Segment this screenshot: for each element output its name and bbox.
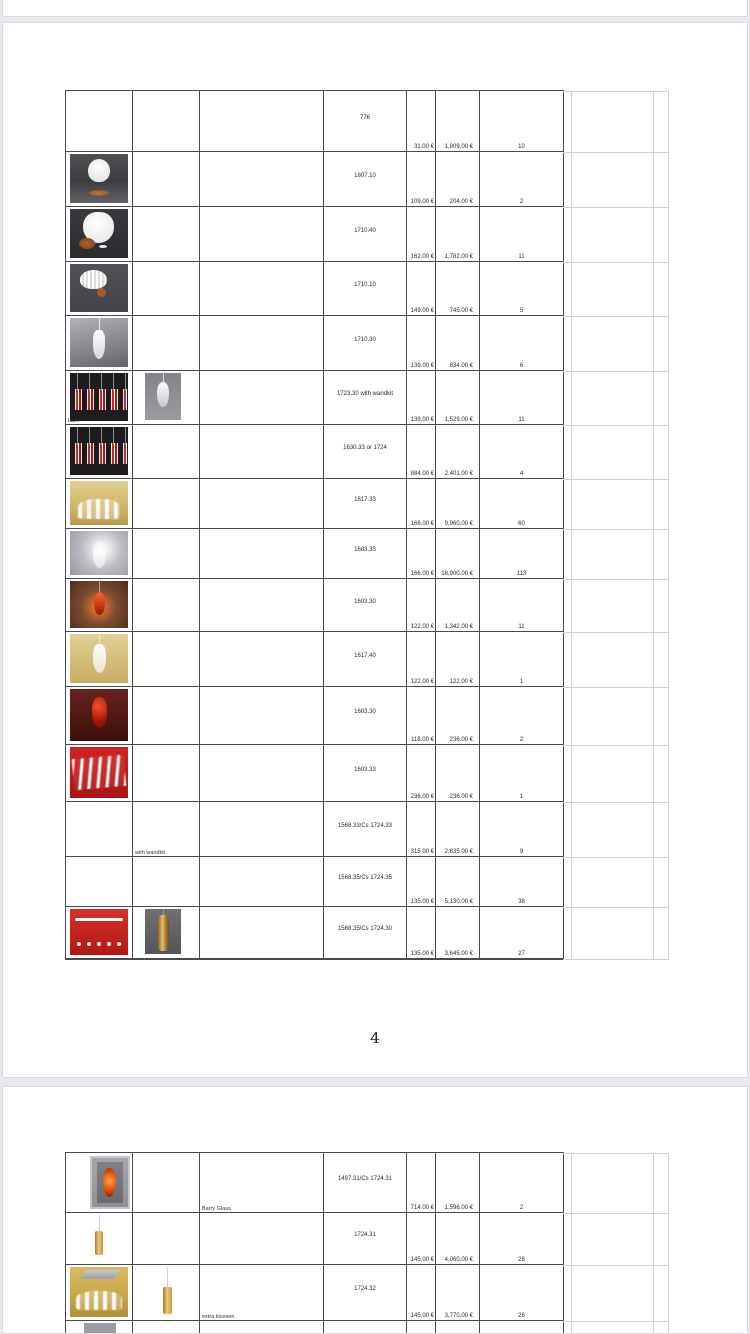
photo-ceillamp — [70, 264, 128, 312]
total-price: 18,900.00 € — [441, 571, 473, 577]
unit-price: 166.00 € — [411, 521, 434, 527]
cell-image-2 — [133, 371, 200, 424]
quantity: 26 — [518, 1313, 525, 1319]
table-row: 1603.30122.00 €1,342.00 €11 — [66, 579, 563, 632]
cell-code: 1630.33 or 1724 — [324, 425, 407, 478]
cell-image-2 — [133, 1321, 200, 1334]
table-row: 1807.10109.00 €204.00 €2 — [66, 152, 563, 207]
cell-quantity: 38 — [480, 857, 563, 906]
cell-total-price: 9,960.00 € — [436, 479, 480, 528]
product-code: 1710.10 — [354, 282, 376, 290]
cell-quantity: 11 — [480, 579, 563, 631]
cell-code: 1723.30 with wandkit — [324, 371, 407, 424]
cell-description — [200, 479, 324, 528]
cell-image — [66, 802, 133, 856]
cell-image — [66, 91, 133, 151]
previous-page-bottom — [2, 0, 748, 17]
cell-unit-price: 31.00 € — [407, 91, 436, 151]
cell-quantity: 2 — [480, 1153, 563, 1212]
product-code: 1723.30 with wandkit — [337, 391, 393, 399]
cell-unit-price: 236.00 € — [407, 745, 436, 801]
photo-goldroom — [70, 481, 128, 525]
cell-image-2 — [133, 857, 200, 906]
product-code: 1497.31/Cs 1724.31 — [338, 1176, 392, 1184]
cell-total-price: 3,645.00 € — [436, 907, 480, 958]
cell-code: 1617.33 — [324, 479, 407, 528]
product-code: 1568.35/Cs 1724.35 — [338, 875, 392, 883]
cell-description — [200, 857, 324, 906]
photo-redwarm — [70, 581, 128, 628]
cell-quantity: 9 — [480, 802, 563, 856]
cell-image — [66, 1321, 133, 1334]
table-row: 1724.31145.00 €4,060.00 €28 — [66, 1213, 563, 1265]
cell-total-price: 2,835.00 € — [436, 802, 480, 856]
cell-description: extra klossen — [200, 1265, 324, 1320]
total-price: 122.00 € — [450, 679, 473, 685]
cell-description — [200, 425, 324, 478]
cell-image — [66, 857, 133, 906]
cell-unit-price: 166.00 € — [407, 529, 436, 578]
cell-total-price: 745.00 € — [436, 262, 480, 315]
product-code: 1807.10 — [354, 173, 376, 181]
product-code: 1724.32 — [354, 1286, 376, 1294]
quantity: 11 — [518, 417, 524, 423]
photo-walllamp — [70, 209, 128, 258]
unit-price: 149.00 € — [411, 308, 434, 314]
unit-price: 145.00 € — [411, 1313, 434, 1319]
cell-total-price: 1,342.00 € — [436, 579, 480, 631]
cell-total-price: 834.00 € — [436, 316, 480, 370]
quantity: 2 — [520, 199, 523, 205]
table-row: with wandkit1568.33/Cs 1724.33315.00 €2,… — [66, 802, 563, 857]
cell-code: 1807.10 — [324, 152, 407, 206]
cell-quantity: 2 — [480, 687, 563, 744]
cell-description — [200, 262, 324, 315]
cell-image — [66, 425, 133, 478]
product-code: 1568.33/Cs 1724.33 — [338, 823, 392, 831]
table-row: 1710.40162.00 €1,782.00 €11 — [66, 207, 563, 262]
cell-unit-price: 135.00 € — [407, 857, 436, 906]
cell-quantity: 1 — [480, 745, 563, 801]
cell-unit-price: 135.00 € — [407, 907, 436, 958]
cell-image-2 — [133, 529, 200, 578]
total-price: 1,782.00 € — [445, 254, 473, 260]
cell-image — [66, 1265, 133, 1320]
note-text: Lam — [68, 418, 79, 424]
cell-quantity: 6 — [480, 316, 563, 370]
cell-total-price: 1,529.00 € — [436, 371, 480, 424]
table-row: 1617.33166.00 €9,960.00 €60 — [66, 479, 563, 529]
product-code: 1603.30 — [354, 599, 376, 607]
cell-code: 1603.30 — [324, 687, 407, 744]
cell-image-2 — [133, 1213, 200, 1264]
grid-extension — [563, 1153, 669, 1334]
cell-image — [66, 529, 133, 578]
cell-image-2: with wandkit — [133, 802, 200, 856]
unit-price: 122.00 € — [411, 679, 434, 685]
total-price: 9,960.00 € — [445, 521, 473, 527]
cell-image — [66, 907, 133, 958]
quantity: 28 — [518, 1257, 525, 1263]
total-price: 1,529.00 € — [445, 417, 473, 423]
table-row: 1710.30139.00 €834.00 €6 — [66, 316, 563, 371]
cell-unit-price: 118.00 € — [407, 687, 436, 744]
cell-quantity: 10 — [480, 91, 563, 151]
unit-price: 162.00 € — [411, 254, 434, 260]
cell-code: 1603.30 — [324, 579, 407, 631]
cell-description — [200, 529, 324, 578]
cell-total-price: 1,596.00 € — [436, 1153, 480, 1212]
total-price: 834.00 € — [450, 363, 473, 369]
table-row — [66, 1321, 563, 1334]
cell-description — [200, 1321, 324, 1334]
total-price: 3,645.00 € — [445, 951, 473, 957]
cell-image-2 — [133, 1265, 200, 1320]
product-code: 1617.40 — [354, 653, 376, 661]
cell-image-2 — [133, 316, 200, 370]
cell-code: 1710.30 — [324, 316, 407, 370]
quantity: 11 — [518, 254, 524, 260]
cell-image — [66, 687, 133, 744]
cell-unit-price: 714.00 € — [407, 1153, 436, 1212]
photo-orangevase — [90, 1156, 130, 1209]
photo-tablelamp — [70, 154, 128, 203]
quantity: 5 — [520, 308, 523, 314]
cell-unit-price: 139.00 € — [407, 371, 436, 424]
photo-stripes — [70, 373, 128, 421]
product-code: 1617.33 — [354, 497, 376, 505]
photo-goldtwist — [145, 909, 181, 954]
photo-goldroom2 — [70, 1267, 128, 1317]
unit-price: 135.00 € — [411, 899, 434, 905]
quantity: 4 — [520, 471, 523, 477]
grid-extension — [563, 91, 669, 959]
cell-total-price: 236.00 € — [436, 687, 480, 744]
total-price: 236.00 € — [450, 737, 473, 743]
cell-quantity: 4 — [480, 425, 563, 478]
cell-image-2 — [133, 579, 200, 631]
quantity: 38 — [518, 899, 525, 905]
cell-description — [200, 371, 324, 424]
cell-image-2 — [133, 1153, 200, 1212]
cell-unit-price: 109.00 € — [407, 152, 436, 206]
cell-unit-price: 122.00 € — [407, 632, 436, 686]
table-row: Lam1723.30 with wandkit139.00 €1,529.00 … — [66, 371, 563, 425]
quantity: 2 — [520, 737, 523, 743]
product-code: 776 — [360, 115, 370, 123]
table-row: 1603.33236.00 €236.00 €1 — [66, 745, 563, 802]
cell-unit-price: 139.00 € — [407, 316, 436, 370]
table-row: 1603.30118.00 €236.00 €2 — [66, 687, 563, 745]
cell-code: 1710.40 — [324, 207, 407, 261]
total-price: 4,060.00 € — [445, 1257, 473, 1263]
total-price: 2,835.00 € — [445, 849, 473, 855]
cell-total-price — [436, 1321, 480, 1334]
cell-description — [200, 632, 324, 686]
cell-total-price: 1,809.00 € — [436, 91, 480, 151]
cell-code: 1710.10 — [324, 262, 407, 315]
product-code: 1603.33 — [354, 547, 376, 555]
quantity: 113 — [517, 571, 527, 577]
cell-image-2 — [133, 479, 200, 528]
note-text: extra klossen — [202, 1314, 234, 1320]
product-code: 1630.33 or 1724 — [343, 445, 387, 453]
cell-image — [66, 745, 133, 801]
cell-quantity: 5 — [480, 262, 563, 315]
cell-description — [200, 579, 324, 631]
cell-image-2 — [133, 207, 200, 261]
cell-unit-price: 166.00 € — [407, 479, 436, 528]
quantity: 10 — [518, 144, 525, 150]
cell-image-2 — [133, 91, 200, 151]
cell-image — [66, 579, 133, 631]
cell-image-2 — [133, 907, 200, 958]
cell-quantity: 11 — [480, 207, 563, 261]
cell-code: 1497.31/Cs 1724.31 — [324, 1153, 407, 1212]
table-row: 1568.35/Cs 1724.30135.00 €3,645.00 €27 — [66, 907, 563, 959]
cell-quantity: 28 — [480, 1213, 563, 1264]
table-row: 1568.35/Cs 1724.35135.00 €5,130.00 €38 — [66, 857, 563, 907]
note-text: with wandkit — [135, 850, 165, 856]
cell-total-price: 122.00 € — [436, 632, 480, 686]
product-code: 1568.35/Cs 1724.30 — [338, 926, 392, 934]
cell-image — [66, 479, 133, 528]
cell-quantity: 2 — [480, 152, 563, 206]
unit-price: 135.00 € — [411, 951, 434, 957]
cell-description: Barry Glass — [200, 1153, 324, 1212]
cell-total-price: 2,401.00 € — [436, 425, 480, 478]
cell-image-2 — [133, 632, 200, 686]
quantity: 2 — [520, 1205, 523, 1211]
unit-price: 31.00 € — [414, 144, 434, 150]
cell-quantity: 26 — [480, 1265, 563, 1320]
price-list-table: 77631.00 €1,809.00 €101807.10109.00 €204… — [65, 90, 564, 960]
pdf-page-4: 77631.00 €1,809.00 €101807.10109.00 €204… — [2, 22, 748, 1078]
cell-quantity: 27 — [480, 907, 563, 958]
cell-code: 1617.40 — [324, 632, 407, 686]
total-price: 1,596.00 € — [445, 1205, 473, 1211]
unit-price: 236.00 € — [411, 794, 434, 800]
cell-code: 1568.35/Cs 1724.30 — [324, 907, 407, 958]
cell-code: 1724.31 — [324, 1213, 407, 1264]
cell-unit-price: 884.00 € — [407, 425, 436, 478]
cell-unit-price: 315.00 € — [407, 802, 436, 856]
cell-description — [200, 907, 324, 958]
product-code: 1603.33 — [354, 767, 376, 775]
total-price: 745.00 € — [450, 308, 473, 314]
cell-code: 1568.33/Cs 1724.33 — [324, 802, 407, 856]
cell-image — [66, 632, 133, 686]
cell-code: 776 — [324, 91, 407, 151]
total-price: 5,130.00 € — [445, 899, 473, 905]
unit-price: 139.00 € — [411, 363, 434, 369]
cell-image — [66, 1153, 133, 1212]
cell-description — [200, 802, 324, 856]
photo-creamdrop — [70, 634, 128, 683]
quantity: 9 — [520, 849, 523, 855]
cell-unit-price — [407, 1321, 436, 1334]
photo-goldcylsmall — [161, 1267, 173, 1316]
total-price: 236.00 € — [450, 794, 473, 800]
cell-unit-price: 162.00 € — [407, 207, 436, 261]
product-code: 1710.30 — [354, 337, 376, 345]
quantity: 6 — [520, 363, 523, 369]
unit-price: 122.00 € — [411, 624, 434, 630]
cell-image: Lam — [66, 371, 133, 424]
quantity: 1 — [520, 679, 523, 685]
table-row: Barry Glass1497.31/Cs 1724.31714.00 €1,5… — [66, 1153, 563, 1213]
cell-code: 1568.35/Cs 1724.35 — [324, 857, 407, 906]
cell-description — [200, 745, 324, 801]
cell-description — [200, 1213, 324, 1264]
cell-unit-price: 145.00 € — [407, 1265, 436, 1320]
cell-unit-price: 149.00 € — [407, 262, 436, 315]
photo-redcones — [70, 747, 128, 798]
photo-stripes — [70, 427, 128, 475]
cell-total-price: 1,782.00 € — [436, 207, 480, 261]
cell-total-price: 5,130.00 € — [436, 857, 480, 906]
cell-image-2 — [133, 262, 200, 315]
photo-smokependant — [145, 373, 181, 420]
unit-price: 166.00 € — [411, 571, 434, 577]
cell-description — [200, 152, 324, 206]
price-list-table-next: Barry Glass1497.31/Cs 1724.31714.00 €1,5… — [65, 1152, 564, 1334]
cell-total-price: 4,060.00 € — [436, 1213, 480, 1264]
photo-reddrop — [70, 689, 128, 741]
total-price: 2,401.00 € — [445, 471, 473, 477]
total-price: 1,342.00 € — [445, 624, 473, 630]
table-row: extra klossen1724.32145.00 €3,770.00 €26 — [66, 1265, 563, 1321]
cell-code: 1724.32 — [324, 1265, 407, 1320]
cell-unit-price: 122.00 € — [407, 579, 436, 631]
quantity: 60 — [518, 521, 525, 527]
cell-quantity: 1 — [480, 632, 563, 686]
cell-quantity: 113 — [480, 529, 563, 578]
unit-price: 714.00 € — [411, 1205, 434, 1211]
photo-droppendant — [70, 318, 128, 367]
quantity: 27 — [518, 951, 525, 957]
cell-quantity: 11 — [480, 371, 563, 424]
cell-description — [200, 207, 324, 261]
cell-image-2 — [133, 152, 200, 206]
cell-description — [200, 316, 324, 370]
cell-image-2 — [133, 745, 200, 801]
cell-image-2 — [133, 425, 200, 478]
cell-total-price: 236.00 € — [436, 745, 480, 801]
table-row: 1617.40122.00 €122.00 €1 — [66, 632, 563, 687]
quantity: 1 — [520, 794, 523, 800]
cell-code: 1603.33 — [324, 529, 407, 578]
table-row: 1603.33166.00 €18,900.00 €113 — [66, 529, 563, 579]
product-code: 1710.40 — [354, 228, 376, 236]
cell-total-price: 204.00 € — [436, 152, 480, 206]
unit-price: 139.00 € — [411, 417, 434, 423]
cell-image — [66, 316, 133, 370]
product-code: 1724.31 — [354, 1232, 376, 1240]
cell-unit-price: 145.00 € — [407, 1213, 436, 1264]
table-row: 77631.00 €1,809.00 €10 — [66, 91, 563, 152]
photo-goldcyl — [92, 1215, 106, 1261]
unit-price: 884.00 € — [411, 471, 434, 477]
cell-total-price: 18,900.00 € — [436, 529, 480, 578]
page-number: 4 — [3, 1029, 747, 1047]
total-price: 3,770.00 € — [445, 1313, 473, 1319]
cell-image — [66, 152, 133, 206]
cell-image — [66, 262, 133, 315]
cell-quantity — [480, 1321, 563, 1334]
total-price: 204.00 € — [450, 199, 473, 205]
cell-image — [66, 1213, 133, 1264]
quantity: 11 — [518, 624, 524, 630]
unit-price: 315.00 € — [411, 849, 434, 855]
cell-description — [200, 687, 324, 744]
unit-price: 145.00 € — [411, 1257, 434, 1263]
pdf-page-5: Barry Glass1497.31/Cs 1724.31714.00 €1,5… — [2, 1086, 748, 1334]
unit-price: 109.00 € — [411, 199, 434, 205]
cell-description — [200, 91, 324, 151]
cell-image-2 — [133, 687, 200, 744]
cell-image — [66, 207, 133, 261]
table-row: 1710.10149.00 €745.00 €5 — [66, 262, 563, 316]
cell-total-price: 3,770.00 € — [436, 1265, 480, 1320]
note-text: Barry Glass — [202, 1206, 231, 1212]
unit-price: 118.00 € — [411, 737, 434, 743]
table-row: 1630.33 or 1724884.00 €2,401.00 €4 — [66, 425, 563, 479]
photo-glowpendant — [70, 531, 128, 575]
cell-code: 1603.33 — [324, 745, 407, 801]
cell-quantity: 60 — [480, 479, 563, 528]
product-code: 1603.30 — [354, 709, 376, 717]
cell-code — [324, 1321, 407, 1334]
total-price: 1,809.00 € — [445, 144, 473, 150]
photo-graytop — [84, 1323, 116, 1334]
photo-redbardots — [70, 909, 128, 955]
